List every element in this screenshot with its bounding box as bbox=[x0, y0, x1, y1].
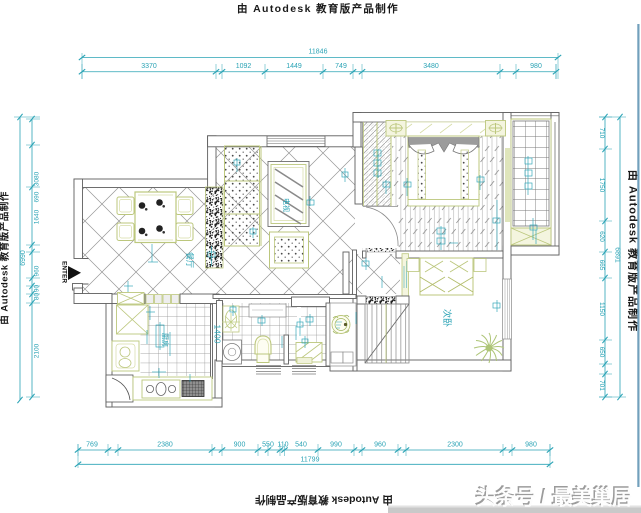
svg-text:90: 90 bbox=[34, 285, 41, 293]
svg-text:头条号 / 最美巢居: 头条号 / 最美巢居 bbox=[476, 486, 632, 510]
svg-text:900: 900 bbox=[234, 442, 246, 449]
svg-text:2300: 2300 bbox=[447, 442, 463, 449]
svg-text:749: 749 bbox=[335, 63, 347, 70]
svg-text:110: 110 bbox=[277, 442, 288, 449]
svg-text:次卧: 次卧 bbox=[442, 309, 453, 327]
svg-text:690: 690 bbox=[34, 191, 41, 202]
svg-text:980: 980 bbox=[525, 442, 537, 449]
svg-text:厨房: 厨房 bbox=[161, 333, 170, 347]
svg-text:540: 540 bbox=[295, 442, 307, 449]
svg-text:6891: 6891 bbox=[614, 247, 621, 263]
svg-text:769: 769 bbox=[86, 442, 98, 449]
svg-text:1150: 1150 bbox=[598, 302, 605, 316]
svg-text:960: 960 bbox=[34, 265, 41, 276]
svg-text:1640: 1640 bbox=[34, 209, 41, 224]
svg-text:980: 980 bbox=[530, 63, 542, 70]
svg-text:3080: 3080 bbox=[34, 171, 41, 186]
svg-text:11799: 11799 bbox=[301, 457, 320, 464]
svg-text:11846: 11846 bbox=[309, 49, 328, 56]
svg-text:餐厅: 餐厅 bbox=[185, 252, 194, 268]
svg-text:1092: 1092 bbox=[236, 63, 252, 70]
svg-text:620: 620 bbox=[598, 231, 605, 242]
svg-text:3480: 3480 bbox=[423, 63, 439, 70]
svg-text:由 Autodesk 教育版产品制作: 由 Autodesk 教育版产品制作 bbox=[255, 494, 393, 507]
svg-text:2100: 2100 bbox=[34, 343, 41, 358]
svg-text:960: 960 bbox=[374, 442, 386, 449]
svg-text:1449: 1449 bbox=[286, 63, 302, 70]
svg-text:650: 650 bbox=[598, 347, 605, 358]
svg-text:80: 80 bbox=[34, 293, 41, 301]
svg-text:3370: 3370 bbox=[141, 63, 157, 70]
svg-text:701: 701 bbox=[598, 380, 605, 391]
svg-text:ENTER: ENTER bbox=[61, 261, 68, 283]
svg-text:2380: 2380 bbox=[157, 442, 173, 449]
svg-text:电视: 电视 bbox=[282, 198, 291, 212]
svg-text:1400: 1400 bbox=[213, 325, 223, 344]
svg-text:6990: 6990 bbox=[20, 250, 27, 266]
svg-text:由 Autodesk 教育版产品制作: 由 Autodesk 教育版产品制作 bbox=[237, 2, 399, 15]
svg-text:由 Autodesk 教育版产品制作: 由 Autodesk 教育版产品制作 bbox=[0, 191, 11, 325]
svg-text:665: 665 bbox=[598, 260, 605, 271]
svg-text:990: 990 bbox=[330, 442, 342, 449]
svg-text:1750: 1750 bbox=[598, 178, 605, 193]
svg-text:710: 710 bbox=[598, 128, 605, 139]
